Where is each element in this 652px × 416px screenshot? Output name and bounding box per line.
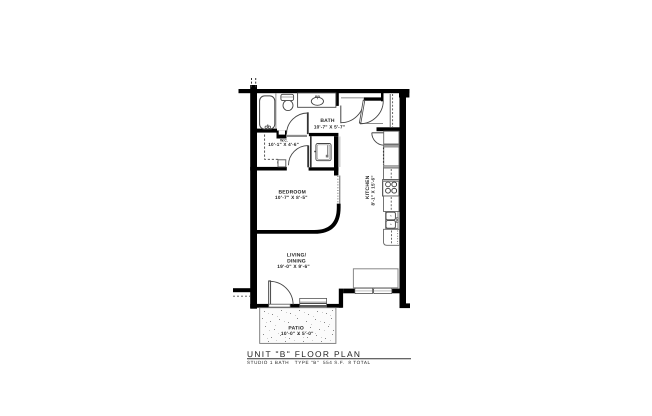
svg-text:DINING: DINING xyxy=(287,258,306,264)
svg-text:10'-0" X 5'-0": 10'-0" X 5'-0" xyxy=(281,331,314,337)
svg-text:10'-7" X 8'-5": 10'-7" X 8'-5" xyxy=(275,195,308,200)
svg-text:PATIO: PATIO xyxy=(288,325,304,331)
svg-text:19'-0" X 9'-6": 19'-0" X 9'-6" xyxy=(277,264,310,270)
svg-text:8'-1" X 15'-6": 8'-1" X 15'-6" xyxy=(370,175,375,205)
svg-text:UNIT "B" FLOOR PLAN: UNIT "B" FLOOR PLAN xyxy=(247,349,361,359)
svg-text:10'-7" X 5'-7": 10'-7" X 5'-7" xyxy=(314,124,345,129)
svg-text:BATH: BATH xyxy=(320,118,335,124)
svg-text:10'-1" X 4'-6": 10'-1" X 4'-6" xyxy=(268,142,299,147)
svg-text:STUDIO 1 BATH TYPE "B" 554: STUDIO 1 BATH TYPE "B" 554 S.F. 8 TOTAL xyxy=(247,360,371,365)
